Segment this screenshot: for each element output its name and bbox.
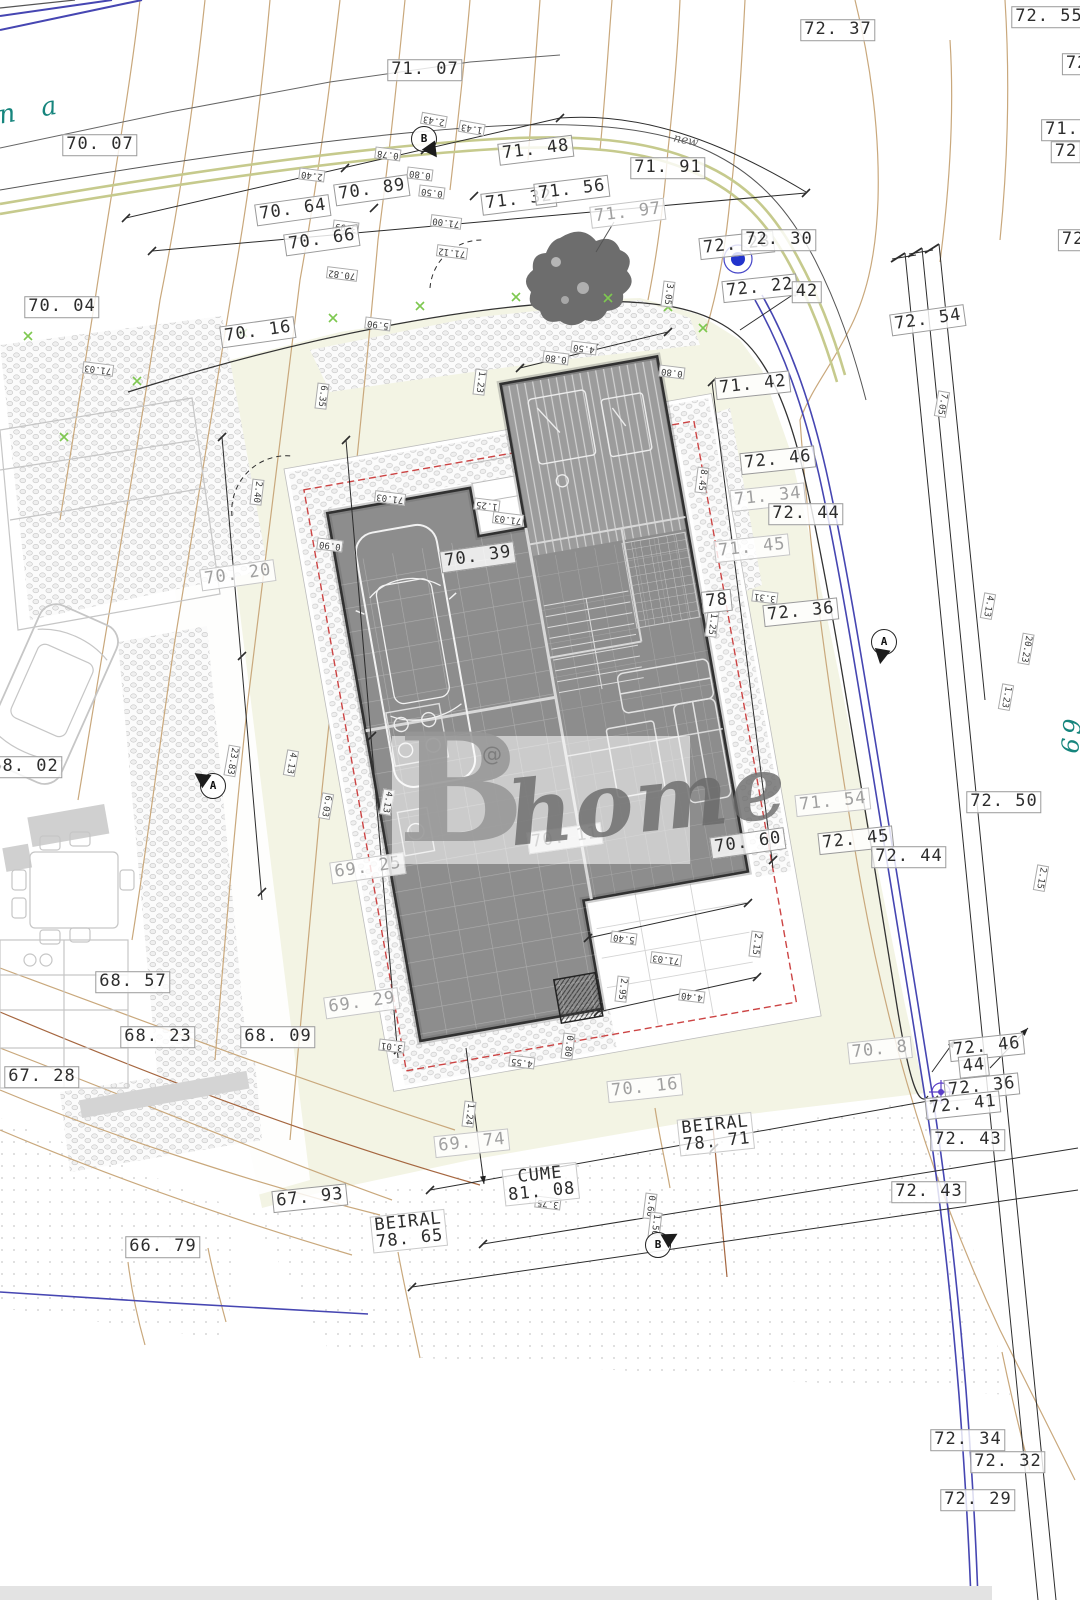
elevation-label: 71. 07 [387, 59, 462, 81]
elevation-label: 72. 44 [871, 846, 946, 868]
survey-lines [891, 244, 1056, 1600]
section-marker-a: A [200, 773, 226, 799]
elevation-label: 68. 23 [120, 1026, 195, 1048]
site-plan-page: B @ home n a 69 new 72. 3771. 0770. 0771… [0, 0, 1080, 1600]
section-marker-letter: B [421, 132, 428, 145]
elevation-label: 72. 55 [1011, 6, 1080, 28]
elevation-label: BEIRAL78. 71 [677, 1112, 756, 1156]
elevation-label: 72. 32 [970, 1451, 1045, 1473]
elevation-label: 66. 79 [125, 1236, 200, 1258]
elevation-label: 68. 02 [0, 756, 63, 778]
section-marker-letter: B [655, 1238, 662, 1251]
elevation-label: 72. 44 [768, 503, 843, 525]
section-marker-letter: A [881, 635, 888, 648]
elevation-label: BEIRAL78. 65 [370, 1209, 449, 1253]
elevation-label: 72. 29 [940, 1489, 1015, 1511]
watermark-word: home [504, 742, 791, 859]
elevation-label: 68. 57 [95, 971, 170, 993]
elevation-label: 72. 34 [930, 1429, 1005, 1451]
neighbour-dining-table [12, 832, 134, 944]
elevation-label: 71. 91 [630, 157, 705, 179]
elevation-label: CUME81. 08 [502, 1162, 581, 1206]
bottom-band [0, 1586, 992, 1600]
street-name-fragment-side: 69 [1054, 718, 1080, 759]
elevation-label: 72. 37 [800, 19, 875, 41]
elevation-label: 70. 04 [24, 296, 99, 318]
elevation-label: 72. 4 [1062, 53, 1080, 75]
section-marker-letter: A [210, 779, 217, 792]
elevation-label: 44 [958, 1054, 991, 1079]
elevation-label: 71. [1041, 119, 1080, 141]
section-marker-b: B [645, 1232, 671, 1258]
watermark-at-icon: @ [482, 742, 502, 766]
neighbour-walls [0, 804, 113, 872]
elevation-label: 42 [792, 281, 822, 303]
elevation-label: 72. 50 [966, 791, 1041, 813]
section-marker-b: B [411, 126, 437, 152]
elevation-label: 67. 28 [4, 1066, 79, 1088]
section-marker-a: A [871, 629, 897, 655]
elevation-label: 72. 3 [1058, 229, 1080, 251]
elevation-label: 78 [701, 589, 734, 614]
elevation-label: 72 [1051, 141, 1080, 163]
elevation-label: 72. 43 [930, 1129, 1005, 1151]
elevation-label: 68. 09 [240, 1026, 315, 1048]
elevation-label: 72. 43 [891, 1181, 966, 1203]
elevation-label: 70. 07 [62, 134, 137, 156]
elevation-label: 72. 30 [741, 229, 816, 251]
